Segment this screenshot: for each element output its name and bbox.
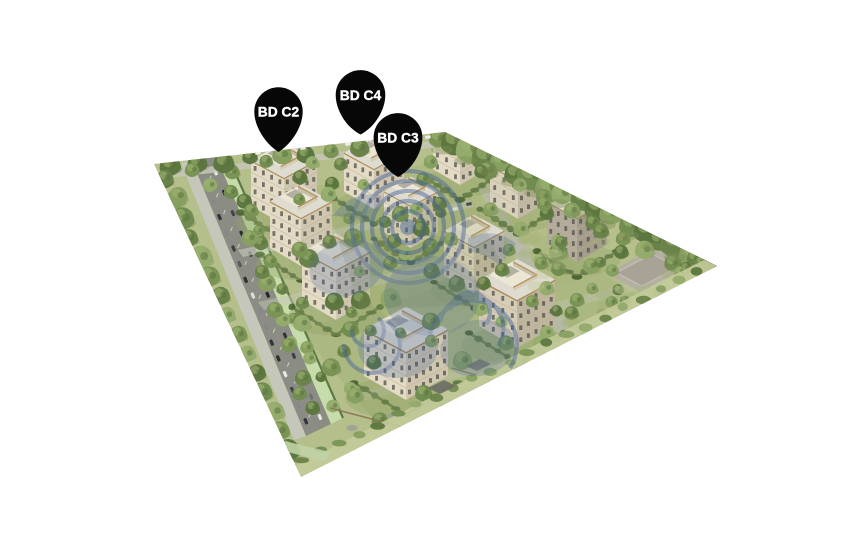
svg-text:BD C3: BD C3	[377, 131, 419, 146]
svg-text:BD C4: BD C4	[340, 88, 382, 103]
svg-text:BD C2: BD C2	[258, 105, 300, 120]
